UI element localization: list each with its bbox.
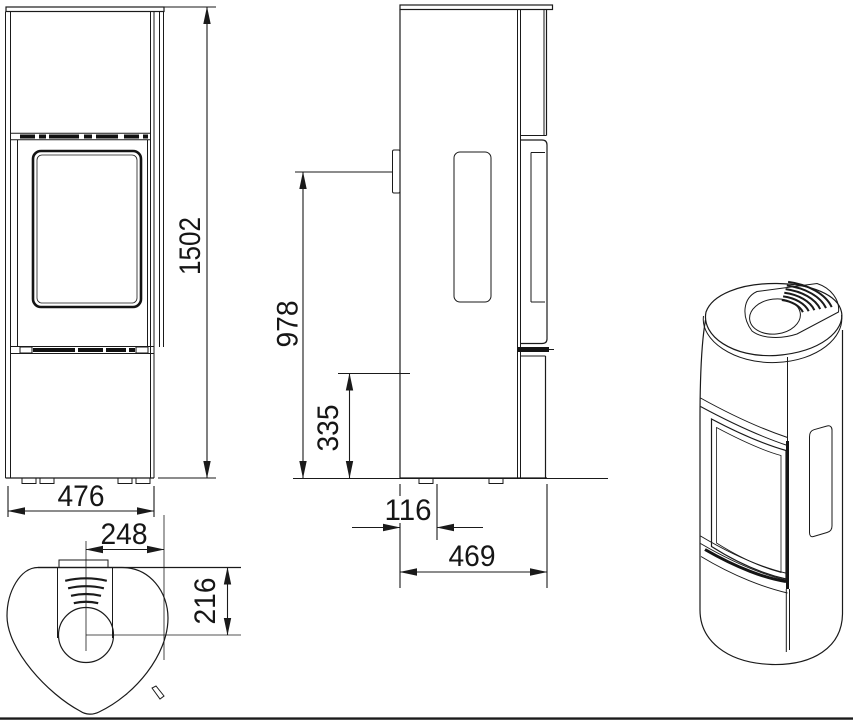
dim-label-rear-outlet-lower: 335 xyxy=(312,405,345,452)
side-top-plate xyxy=(400,5,553,10)
dim-total-height: 1502 xyxy=(158,7,216,478)
top-body-outline xyxy=(7,568,168,715)
front-glass-window xyxy=(33,151,141,307)
drawing-page: 1502 476 248 216 xyxy=(0,0,853,723)
side-door-panel xyxy=(521,140,547,344)
top-flue-collar xyxy=(59,560,108,568)
top-handle-tick xyxy=(152,686,164,699)
stove-technical-drawing: 1502 476 248 216 xyxy=(0,0,853,723)
persp-front-corner-seam xyxy=(786,357,789,652)
persp-side-window xyxy=(810,426,833,537)
side-door-handle xyxy=(518,347,549,352)
dim-rear-outlet-lower: 335 xyxy=(312,374,410,479)
front-top-plate xyxy=(6,7,164,12)
dim-label-front-width: 476 xyxy=(58,480,105,513)
front-view xyxy=(6,7,165,484)
dim-label-flue-from-back-top: 216 xyxy=(189,578,222,625)
side-window xyxy=(454,152,491,302)
dim-label-rear-outlet-upper: 978 xyxy=(272,301,305,348)
front-handle-left xyxy=(20,347,32,353)
front-handle-right xyxy=(136,347,148,353)
dim-label-depth: 469 xyxy=(449,540,496,573)
dim-label-total-height: 1502 xyxy=(174,217,207,275)
persp-vent-recess xyxy=(745,284,839,338)
front-door xyxy=(11,133,155,353)
persp-body-outline xyxy=(700,320,843,665)
dim-label-offset-from-back: 116 xyxy=(385,494,432,527)
side-glass-profile xyxy=(531,153,545,303)
dim-front-width: 476 xyxy=(8,480,154,517)
side-rear-flue-outlet xyxy=(393,150,401,193)
persp-flue-cover xyxy=(748,296,803,337)
dim-label-flue-offset: 248 xyxy=(101,518,148,551)
perspective-view xyxy=(700,282,843,665)
dim-flue-from-back-top: 216 xyxy=(189,568,228,636)
persp-door xyxy=(701,398,788,593)
